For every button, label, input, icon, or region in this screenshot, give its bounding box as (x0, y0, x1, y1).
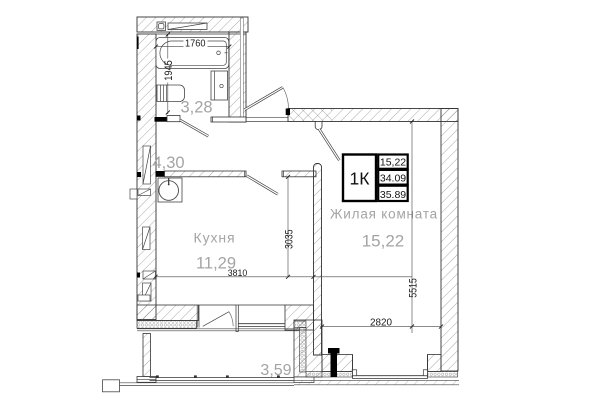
svg-text:1760: 1760 (185, 38, 206, 49)
svg-text:3035: 3035 (283, 230, 295, 250)
svg-text:15,22: 15,22 (362, 232, 405, 251)
svg-text:3810: 3810 (228, 268, 248, 279)
svg-text:1945: 1945 (163, 60, 175, 81)
svg-text:2820: 2820 (370, 317, 392, 328)
svg-text:3,28: 3,28 (180, 98, 212, 116)
svg-text:15,22: 15,22 (380, 157, 406, 169)
svg-text:1К: 1К (350, 168, 371, 188)
svg-text:Жилая комната: Жилая комната (330, 207, 438, 222)
svg-text:35.89: 35.89 (380, 189, 406, 201)
svg-text:5515: 5515 (408, 278, 420, 298)
svg-text:34.09: 34.09 (380, 173, 406, 185)
svg-text:3,59: 3,59 (260, 362, 291, 379)
svg-text:4,30: 4,30 (152, 154, 184, 172)
svg-text:Кухня: Кухня (194, 229, 236, 245)
